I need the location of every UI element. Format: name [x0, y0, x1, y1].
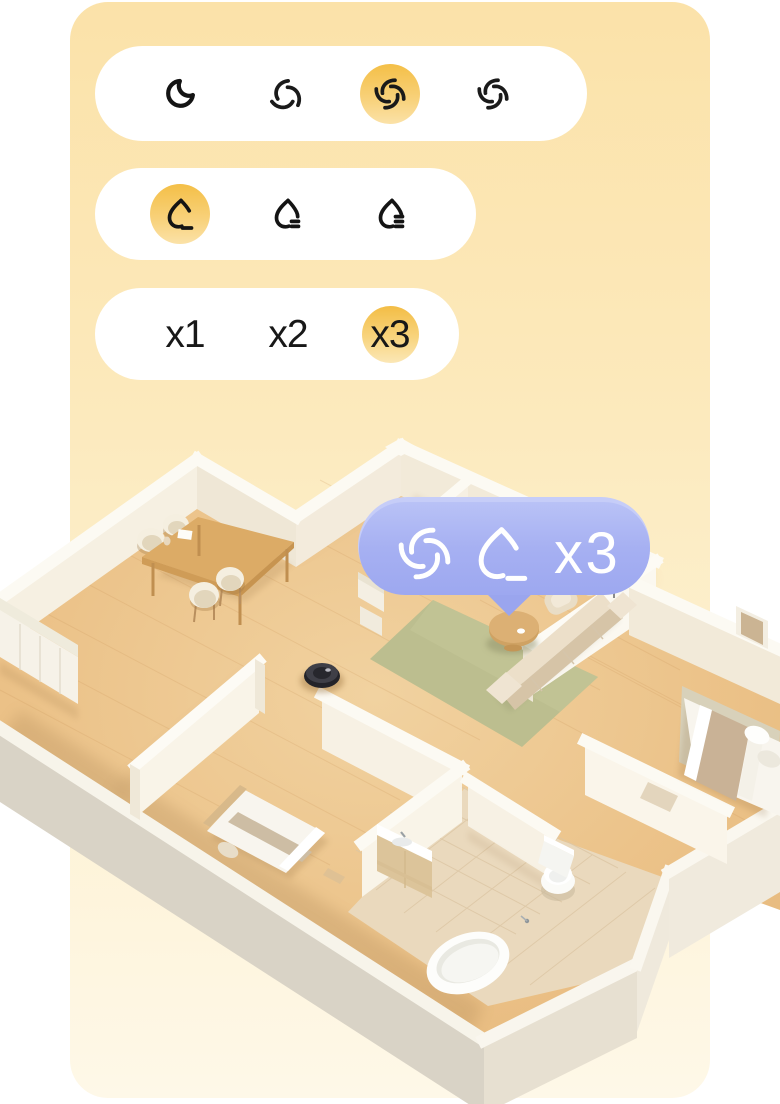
svg-text:x3: x3: [554, 521, 620, 586]
